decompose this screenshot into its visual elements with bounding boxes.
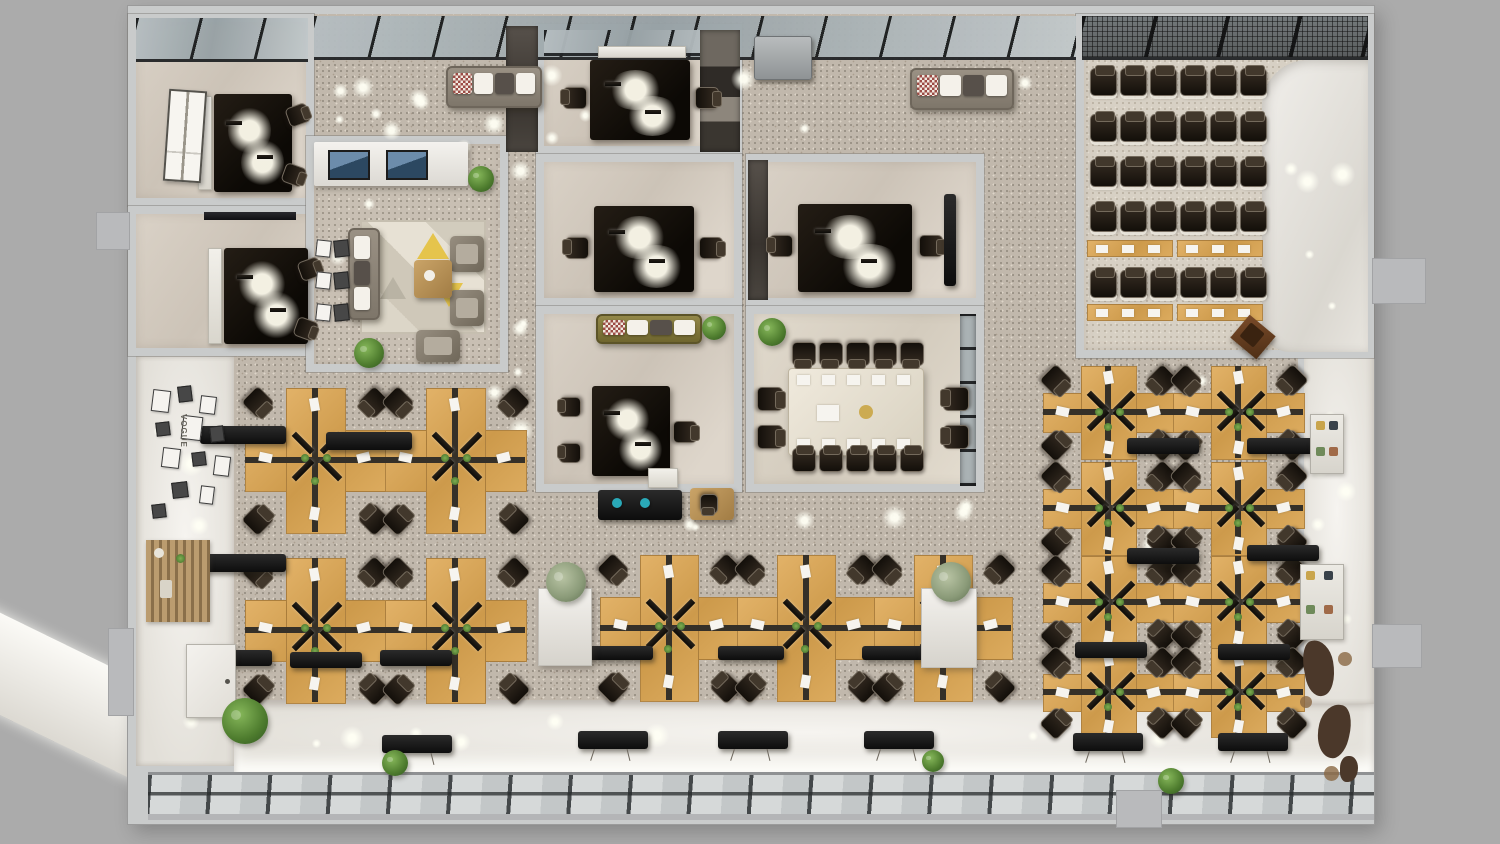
storage-cabinet <box>864 731 934 749</box>
accent-item <box>612 498 622 508</box>
workstation-cluster <box>1173 648 1303 736</box>
executive-desk <box>592 386 670 476</box>
ceiling-light-glow <box>956 497 976 517</box>
reception-desk <box>314 142 468 186</box>
ceiling-light-glow <box>1328 160 1357 189</box>
workstation-cluster <box>1173 462 1303 554</box>
console-table <box>146 540 210 622</box>
sofa <box>446 66 542 108</box>
armchair <box>450 236 484 272</box>
executive-desk <box>798 204 912 292</box>
ceiling-light-glow <box>512 366 524 378</box>
picture-frames <box>316 240 352 338</box>
ceiling-light-glow <box>311 738 322 749</box>
office-chair <box>565 237 589 259</box>
ceiling-light-glow <box>334 114 345 125</box>
office-chair <box>559 443 581 463</box>
storage-cabinet <box>1127 438 1199 454</box>
office-chair <box>563 87 587 109</box>
office-chair <box>919 235 943 257</box>
potted-plant <box>382 750 408 776</box>
wall-frame <box>163 89 207 183</box>
storage-cabinet <box>290 652 362 668</box>
ceiling-light-glow <box>407 87 430 110</box>
workstation-cluster <box>1043 462 1173 554</box>
ceiling-light-glow <box>481 111 507 137</box>
credenza <box>208 248 222 344</box>
coffee-table <box>414 260 452 298</box>
sofa <box>596 314 702 344</box>
credenza <box>648 468 678 488</box>
storage-cabinet <box>718 731 788 749</box>
armchair <box>416 330 460 362</box>
ceiling-light-glow <box>690 522 701 533</box>
ceiling-light-glow <box>362 197 376 211</box>
workstation-cluster <box>1043 556 1173 648</box>
storage-cabinet <box>718 646 784 660</box>
conference-set <box>754 330 970 482</box>
training-chair-row <box>1090 114 1270 144</box>
perimeter-window-band <box>148 772 1374 820</box>
ceiling-light-glow <box>880 503 909 532</box>
storage-cabinet <box>578 731 648 749</box>
training-chair-row <box>1090 270 1270 300</box>
exterior-wall-tab <box>1116 790 1162 828</box>
ceiling-light-glow <box>793 509 816 532</box>
executive-desk <box>590 60 690 140</box>
office-chair <box>695 87 719 109</box>
ceiling-light-glow <box>1304 249 1315 260</box>
wall-tv <box>204 212 296 220</box>
potted-plant <box>931 562 971 602</box>
storage-cabinet <box>1247 545 1319 561</box>
workstation-cluster <box>385 388 525 532</box>
shelving-unit <box>1300 564 1344 640</box>
training-table <box>1087 304 1173 321</box>
workstation-cluster <box>1043 648 1173 736</box>
ceiling-light-glow <box>450 731 473 754</box>
ceiling-light-glow <box>539 63 564 88</box>
gallery-wall-text: VOGUE <box>144 414 188 424</box>
ceiling-light-glow <box>1310 516 1327 533</box>
storage-cabinet <box>1247 438 1319 454</box>
office-chair <box>673 421 697 443</box>
skylight-band <box>136 18 308 62</box>
workstation-cluster <box>245 558 385 702</box>
potted-plant <box>702 316 726 340</box>
sofa <box>910 68 1014 110</box>
accent-item <box>640 498 650 508</box>
exterior-wall-tab <box>1372 258 1426 304</box>
ceiling-light-glow <box>1016 74 1034 92</box>
office-floor-plan-render: VOGUE <box>0 0 1500 844</box>
ceiling-light-glow <box>545 711 565 731</box>
exterior-wall-tab <box>1372 624 1422 668</box>
potted-plant <box>468 166 494 192</box>
storage-cabinet <box>1218 733 1288 751</box>
sofa <box>348 228 380 320</box>
ceiling-light-glow <box>331 82 349 100</box>
ceiling-light-glow <box>1283 161 1299 177</box>
ceiling-light-glow <box>1327 301 1337 311</box>
potted-plant <box>922 750 944 772</box>
storage-cabinet <box>1218 644 1290 660</box>
storage-cabinet <box>1073 733 1143 751</box>
potted-plant <box>222 698 268 744</box>
training-table <box>1087 240 1173 257</box>
workstation-cluster <box>1173 556 1303 648</box>
shelving-unit <box>1310 414 1344 474</box>
walkway-floor <box>1262 60 1368 352</box>
ceiling-light-glow <box>1334 480 1357 503</box>
executive-desk <box>214 94 292 192</box>
storage-cabinet <box>380 650 452 666</box>
credenza <box>598 46 686 58</box>
storage-cabinet <box>754 36 812 80</box>
storage-cabinet <box>326 432 412 450</box>
office-chair <box>700 494 718 514</box>
world-map-decal <box>1296 634 1362 786</box>
workstation-cluster <box>385 558 525 702</box>
office-chair <box>699 237 723 259</box>
training-chair-row <box>1090 204 1270 234</box>
feature-wall <box>748 160 768 300</box>
storage-cabinet <box>200 554 286 572</box>
office-chair <box>559 397 581 417</box>
ceiling-light-glow <box>517 317 530 330</box>
potted-plant <box>354 338 384 368</box>
ceiling-light-glow <box>338 724 366 752</box>
ceiling-light-glow <box>544 130 560 146</box>
gallery-wall: VOGUE <box>148 386 238 526</box>
executive-desk <box>594 206 694 292</box>
office-chair <box>769 235 793 257</box>
exterior-wall-tab <box>108 628 134 716</box>
training-chair-row <box>1090 159 1270 189</box>
exterior-wall-tab <box>96 212 130 250</box>
ceiling-light-glow <box>1027 730 1039 742</box>
potted-plant <box>546 562 586 602</box>
training-chair-row <box>1090 68 1270 98</box>
ceiling-light-glow <box>798 122 811 135</box>
workstation-cluster <box>245 388 385 532</box>
storage-cabinet <box>944 194 956 286</box>
skylight-band <box>1082 16 1368 60</box>
storage-cabinet <box>1075 642 1147 658</box>
training-table <box>1177 240 1263 257</box>
storage-cabinet <box>1127 548 1199 564</box>
workstation-cluster <box>600 555 737 700</box>
armchair <box>450 290 484 326</box>
ceiling-light-glow <box>350 75 375 100</box>
storage-cabinet <box>862 646 928 660</box>
ceiling-light-glow <box>380 119 403 142</box>
storage-cabinet <box>587 646 653 660</box>
ceiling-light-glow <box>508 159 533 184</box>
workstation-cluster <box>737 555 874 700</box>
